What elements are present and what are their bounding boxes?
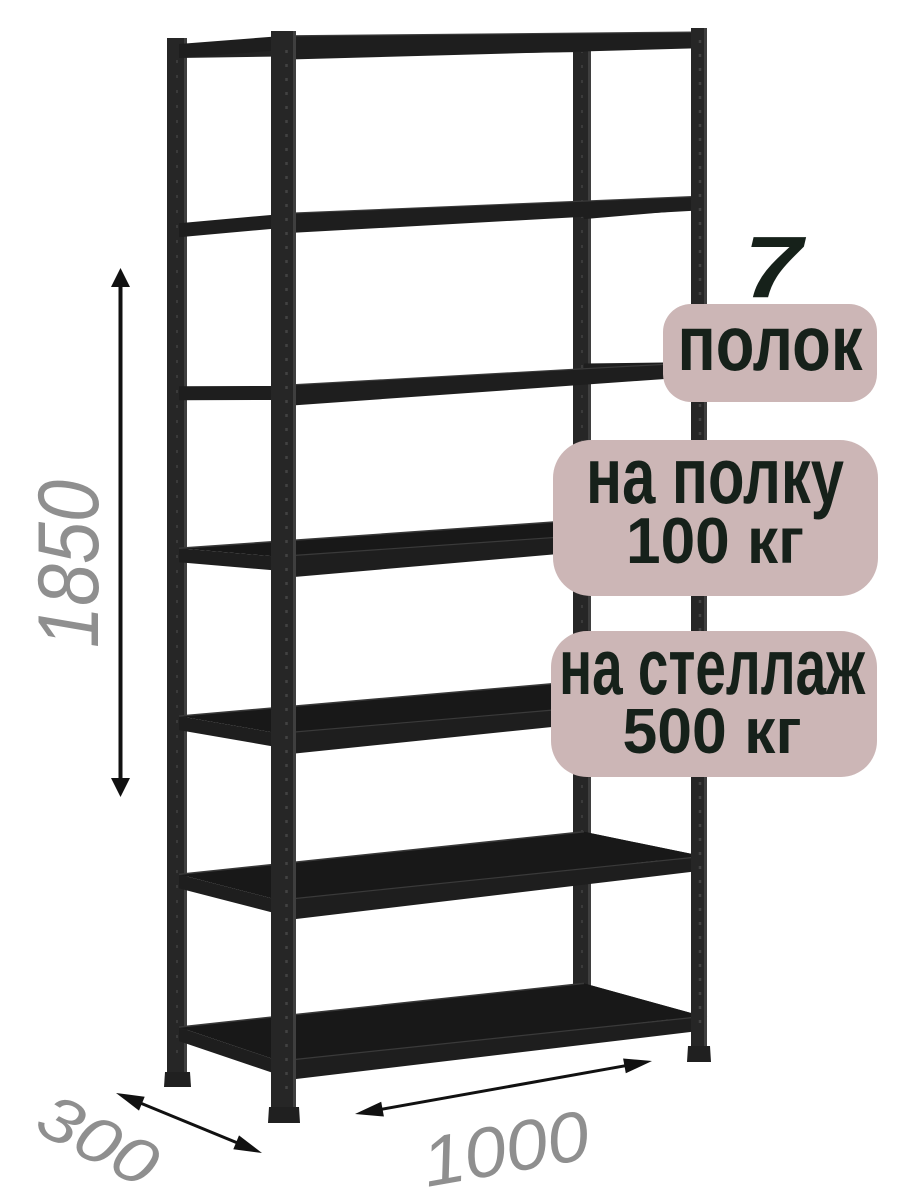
svg-text:100 кг: 100 кг xyxy=(626,504,804,577)
svg-text:500 кг: 500 кг xyxy=(623,695,802,767)
svg-text:полок: полок xyxy=(678,299,864,387)
svg-text:1850: 1850 xyxy=(21,480,117,648)
